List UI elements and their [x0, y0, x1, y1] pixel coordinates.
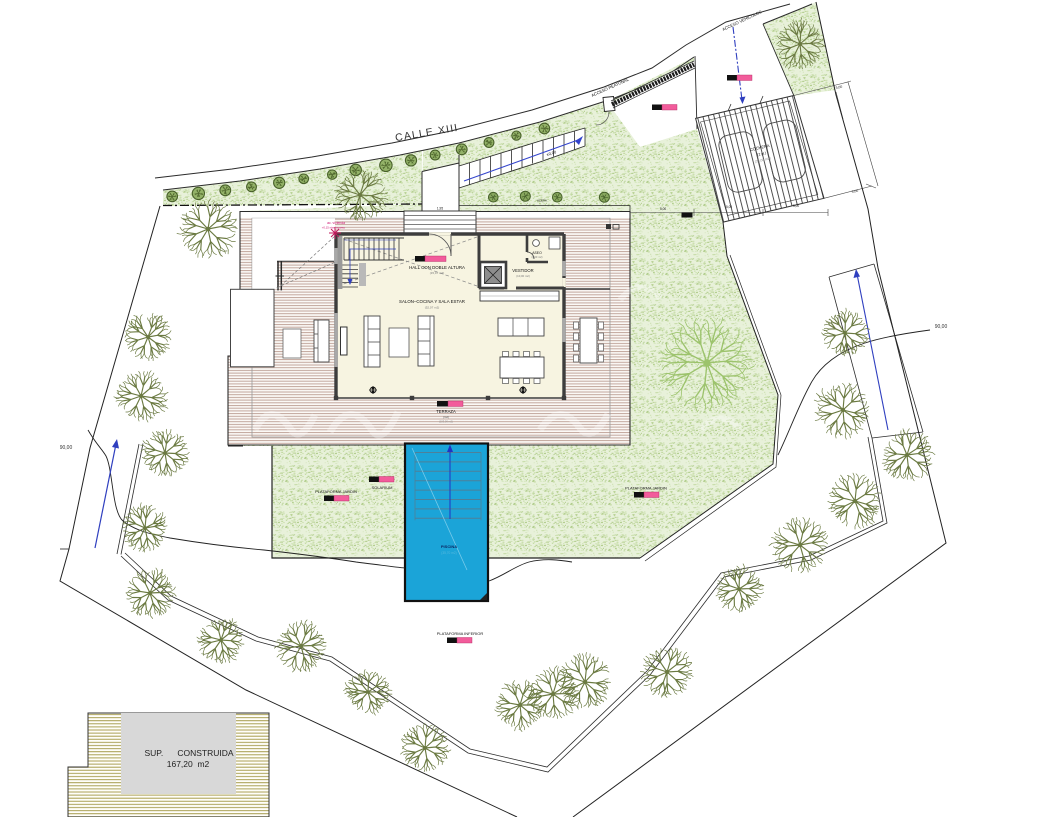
svg-text:ASEO: ASEO	[532, 251, 542, 255]
svg-text:167,20 m2: 167,20 m2	[167, 759, 210, 769]
svg-text:90,00: 90,00	[60, 445, 73, 451]
svg-text:PLATAFORMA JARDIN: PLATAFORMA JARDIN	[625, 486, 667, 491]
svg-text:90,00: 90,00	[935, 324, 948, 330]
svg-text:PLATAFORMA JARDIN: PLATAFORMA JARDIN	[315, 489, 357, 494]
svg-text:5,00: 5,00	[660, 207, 666, 211]
svg-text:(10,00 m2): (10,00 m2)	[516, 274, 530, 278]
svg-text:VESTIDOR: VESTIDOR	[512, 268, 533, 273]
svg-text:(103,00 m2): (103,00 m2)	[439, 420, 453, 424]
svg-text:5,00: 5,00	[726, 205, 732, 209]
svg-text:SOLARIUM: SOLARIUM	[372, 485, 393, 490]
svg-text:(15,07 m2): (15,07 m2)	[430, 271, 445, 275]
svg-text:+0,15 nivel acceso: +0,15 nivel acceso	[322, 226, 346, 230]
svg-text:PLATAFORMA INFERIOR: PLATAFORMA INFERIOR	[437, 631, 484, 636]
svg-text:TERRAZA: TERRAZA	[436, 409, 456, 414]
svg-text:ac. vivienda: ac. vivienda	[327, 221, 345, 225]
svg-text:(m2): (m2)	[443, 415, 449, 419]
svg-text:5,00: 5,00	[793, 204, 799, 208]
svg-text:(3,00 m2): (3,00 m2)	[531, 255, 542, 259]
svg-text:1,95: 1,95	[437, 207, 443, 211]
svg-text:HALL CON DOBLE ALTURA: HALL CON DOBLE ALTURA	[409, 265, 465, 270]
svg-text:SUP. CONSTRUIDA: SUP. CONSTRUIDA	[144, 748, 233, 758]
svg-text:ACERA: ACERA	[537, 199, 547, 203]
svg-text:SALON–COCINA Y SALA ESTAR: SALON–COCINA Y SALA ESTAR	[399, 299, 465, 304]
svg-text:(52,07 m2): (52,07 m2)	[425, 306, 440, 310]
svg-text:(35,70 m2): (35,70 m2)	[441, 551, 456, 555]
svg-text:PISCINA: PISCINA	[441, 544, 457, 549]
